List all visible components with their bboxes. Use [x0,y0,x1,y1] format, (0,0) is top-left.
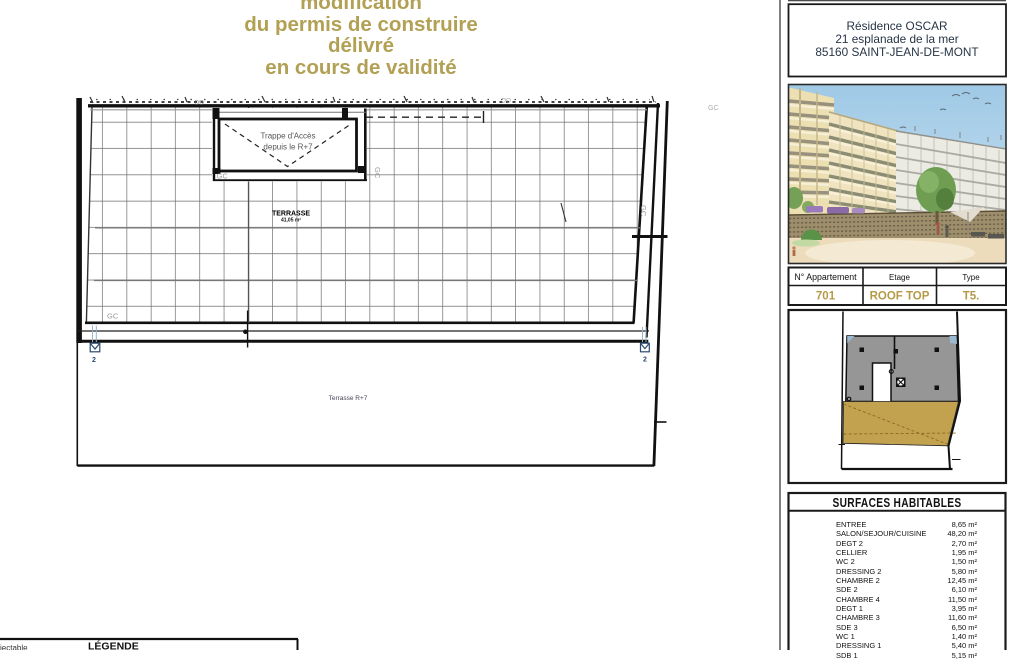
svg-text:GC: GC [217,172,229,181]
svg-text:LÉGENDE: LÉGENDE [88,640,139,651]
svg-text:GC: GC [107,312,119,321]
svg-text:Terrasse R+7: Terrasse R+7 [329,395,368,402]
svg-text:GC: GC [501,96,511,103]
svg-text:GC: GC [194,98,204,105]
svg-text:GC: GC [373,167,382,179]
svg-text:iectable: iectable [0,644,28,651]
svg-text:T5.: T5. [963,291,980,303]
svg-text:GC: GC [639,205,648,217]
svg-text:TERRASSE: TERRASSE [272,211,310,218]
svg-text:701: 701 [816,291,836,303]
svg-text:depuis le R+7: depuis le R+7 [263,143,313,152]
svg-text:41,05 m²: 41,05 m² [281,218,301,224]
svg-text:GC: GC [708,105,719,112]
svg-text:Type: Type [962,273,980,282]
svg-text:Trappe d'Accès: Trappe d'Accès [260,132,315,141]
svg-text:ROOF TOP: ROOF TOP [870,291,930,303]
svg-text:2: 2 [92,357,96,364]
svg-text:N° Appartement: N° Appartement [794,272,857,282]
svg-text:Etage: Etage [889,273,910,282]
svg-text:2: 2 [643,357,647,364]
svg-text:SURFACES HABITABLES: SURFACES HABITABLES [833,497,962,510]
